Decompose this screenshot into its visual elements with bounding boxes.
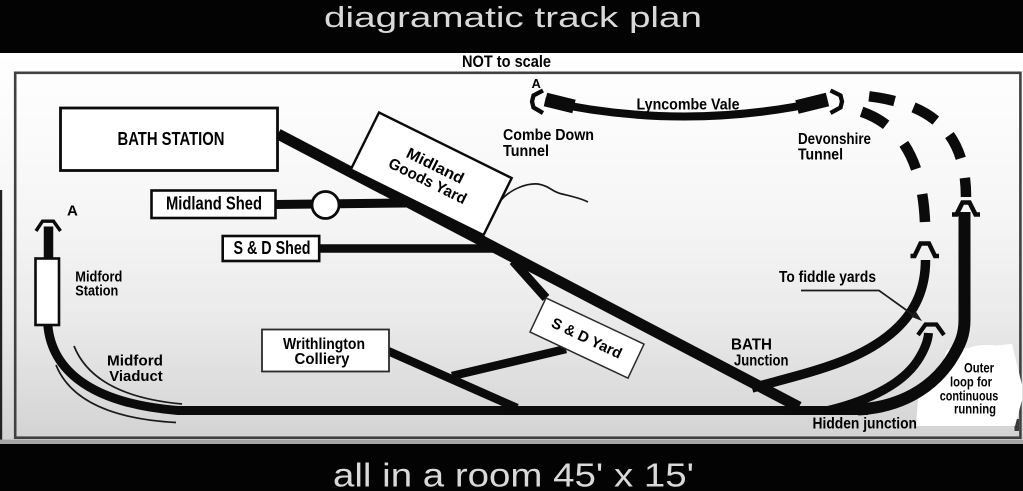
- svg-text:all in a room 45' x 15': all in a room 45' x 15': [333, 458, 694, 491]
- svg-text:A: A: [532, 76, 542, 91]
- svg-text:running: running: [954, 402, 996, 417]
- svg-text:Lyncombe Vale: Lyncombe Vale: [637, 97, 740, 114]
- svg-text:Midland Shed: Midland Shed: [166, 194, 262, 214]
- svg-text:Station: Station: [75, 284, 118, 300]
- svg-text:Devonshire: Devonshire: [798, 131, 871, 148]
- svg-text:Hidden junction: Hidden junction: [813, 416, 918, 433]
- svg-text:Tunnel: Tunnel: [798, 147, 843, 164]
- svg-text:Junction: Junction: [734, 353, 789, 370]
- svg-text:A: A: [67, 203, 78, 220]
- svg-text:Viaduct: Viaduct: [109, 369, 163, 385]
- svg-text:To fiddle yards: To fiddle yards: [779, 269, 876, 286]
- svg-text:Tunnel: Tunnel: [503, 143, 549, 160]
- svg-text:BATH: BATH: [731, 337, 772, 354]
- svg-text:BATH STATION: BATH STATION: [118, 129, 225, 149]
- svg-text:Colliery: Colliery: [295, 351, 350, 368]
- svg-text:Outer: Outer: [964, 361, 995, 376]
- svg-text:NOT to scale: NOT to scale: [462, 52, 551, 71]
- svg-text:diagramatic track plan: diagramatic track plan: [324, 2, 702, 34]
- svg-text:Midford: Midford: [107, 354, 163, 370]
- svg-text:S & D Shed: S & D Shed: [234, 238, 311, 258]
- svg-text:Combe Down: Combe Down: [503, 127, 594, 144]
- svg-text:loop for: loop for: [950, 375, 993, 390]
